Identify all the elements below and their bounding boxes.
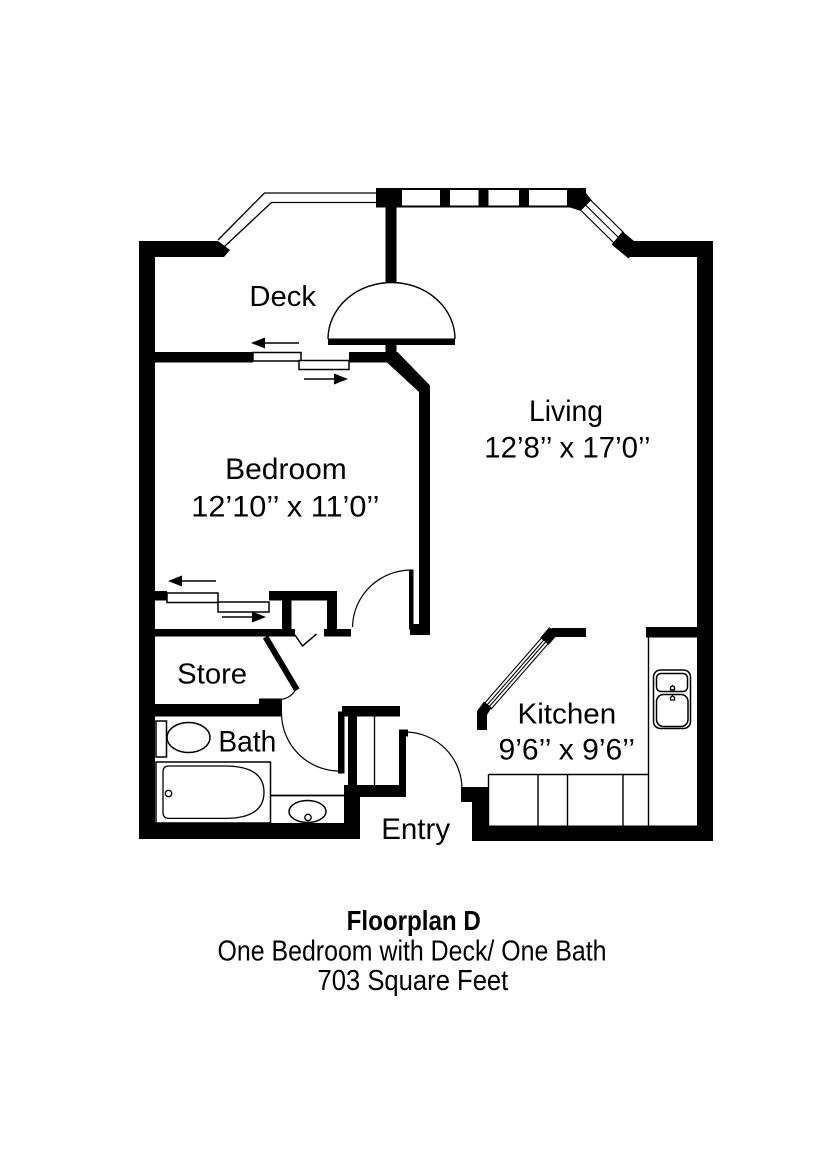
svg-text:Kitchen: Kitchen xyxy=(518,699,617,731)
svg-text:12’10’’ x 11’0’’: 12’10’’ x 11’0’’ xyxy=(191,491,379,524)
svg-text:Deck: Deck xyxy=(249,281,316,313)
svg-text:Bath: Bath xyxy=(218,726,276,759)
svg-text:One Bedroom with Deck/ One Bat: One Bedroom with Deck/ One Bath xyxy=(218,936,607,968)
svg-text:Bedroom: Bedroom xyxy=(225,453,347,486)
svg-text:Entry: Entry xyxy=(381,813,450,846)
svg-text:12’8’’ x 17’0’’: 12’8’’ x 17’0’’ xyxy=(484,432,650,465)
svg-text:Floorplan D: Floorplan D xyxy=(347,905,481,936)
svg-text:Store: Store xyxy=(177,659,247,691)
svg-text:9’6’’ x 9’6’’: 9’6’’ x 9’6’’ xyxy=(499,734,636,767)
svg-text:703 Square Feet: 703 Square Feet xyxy=(318,965,509,997)
svg-text:Living: Living xyxy=(529,395,603,428)
